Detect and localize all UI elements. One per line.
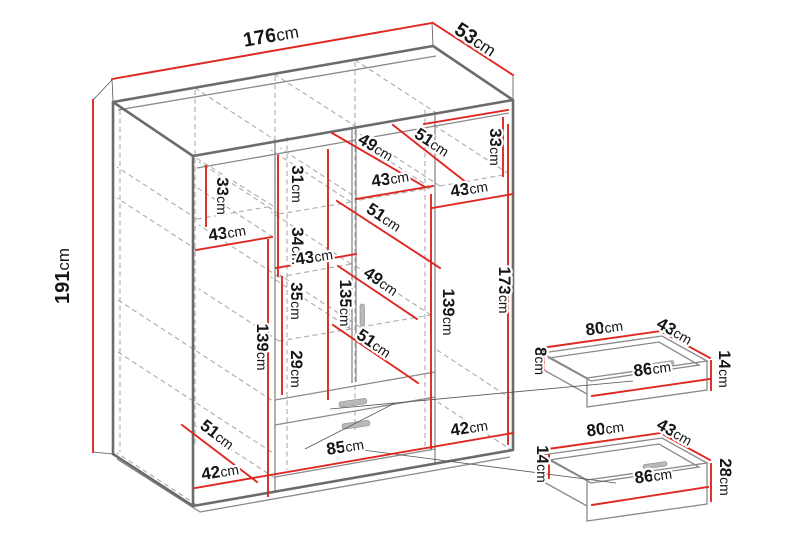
dim-label-dt-80: 80cm [584, 316, 624, 340]
dim-label-db-28: 28cm [716, 458, 735, 496]
drawer-top-detail [542, 336, 707, 407]
middle-door-handle-right [360, 304, 365, 326]
wardrobe-wireframe [113, 46, 513, 512]
dim-label-29: 29cm [287, 350, 306, 388]
dim-label-139-midright: 139cm [439, 288, 458, 335]
dim-label-left-33: 33cm [213, 177, 232, 215]
dim-label-dt-8: 8cm [531, 347, 550, 375]
furniture-dimension-diagram: 176cm 53cm 191cm 33cm 43cm 31cm 34cm 49c… [0, 0, 800, 533]
dim-label-dt-14: 14cm [715, 350, 734, 388]
dim-label-31: 31cm [288, 165, 307, 203]
dim-label-35: 35cm [287, 282, 306, 320]
dim-label-135: 135cm [336, 279, 355, 326]
dim-label-height-191: 191cm [52, 248, 74, 304]
dim-label-173: 173cm [495, 266, 514, 313]
drawer-bottom-detail [542, 438, 707, 521]
dim-label-depth-53: 53cm [450, 19, 500, 62]
dim-label-139-left: 139cm [253, 323, 272, 370]
dim-label-db-80: 80cm [585, 417, 625, 441]
diagram-svg: 176cm 53cm 191cm 33cm 43cm 31cm 34cm 49c… [0, 0, 800, 533]
dim-label-db-14: 14cm [533, 445, 552, 483]
dim-label-right-33: 33cm [486, 128, 505, 166]
